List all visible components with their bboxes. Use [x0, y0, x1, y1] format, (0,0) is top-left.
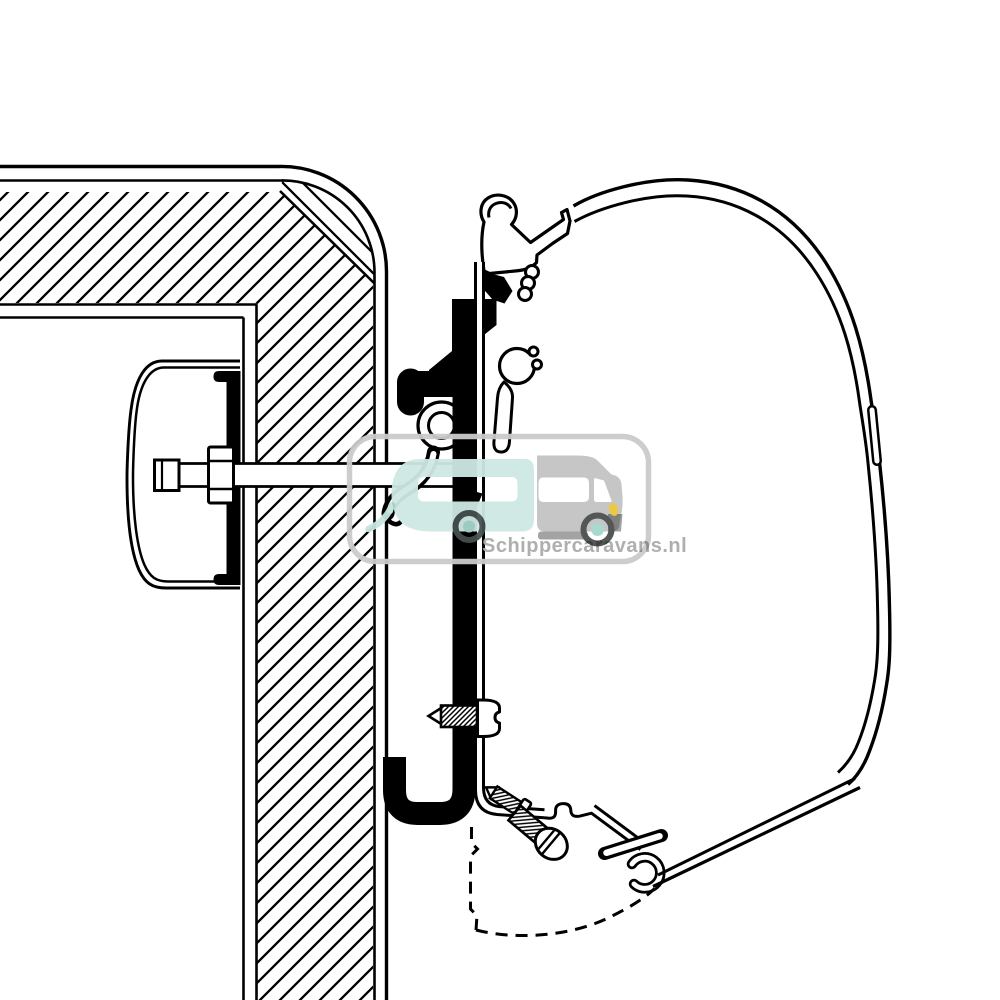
rail-foot: [494, 382, 513, 452]
screw-shank: [441, 706, 477, 728]
rail-bottom-upper-line: [595, 806, 644, 842]
hidden-contour-curve: [476, 889, 655, 936]
awning-case-outline: [574, 180, 890, 887]
adapter-step: [429, 337, 477, 373]
roof-and-wall-core-hatching: [0, 192, 373, 1000]
hidden-contour-vertical: [471, 827, 478, 930]
adapter-top-finger: [483, 272, 513, 304]
caravan-wall-section: [0, 166, 387, 1000]
technical-diagram: Schippercaravans.nl: [0, 0, 1000, 1000]
rail-serration-3: [519, 288, 532, 301]
rail-c-hook-tip-lower: [533, 360, 542, 369]
watermark-text: Schippercaravans.nl: [482, 535, 687, 557]
watermark: Schippercaravans.nl: [350, 437, 688, 562]
case-bottom-inner-line: [658, 779, 855, 876]
watermark-caravan-wheel-hub: [463, 521, 475, 533]
rail-c-hook-tip-upper: [529, 347, 538, 356]
rail-top-hook: [481, 195, 570, 273]
screw-head: [478, 700, 500, 737]
hex-nut: [209, 447, 234, 503]
case-bottom-outer-line: [653, 788, 860, 887]
bolt-head: [155, 460, 180, 491]
